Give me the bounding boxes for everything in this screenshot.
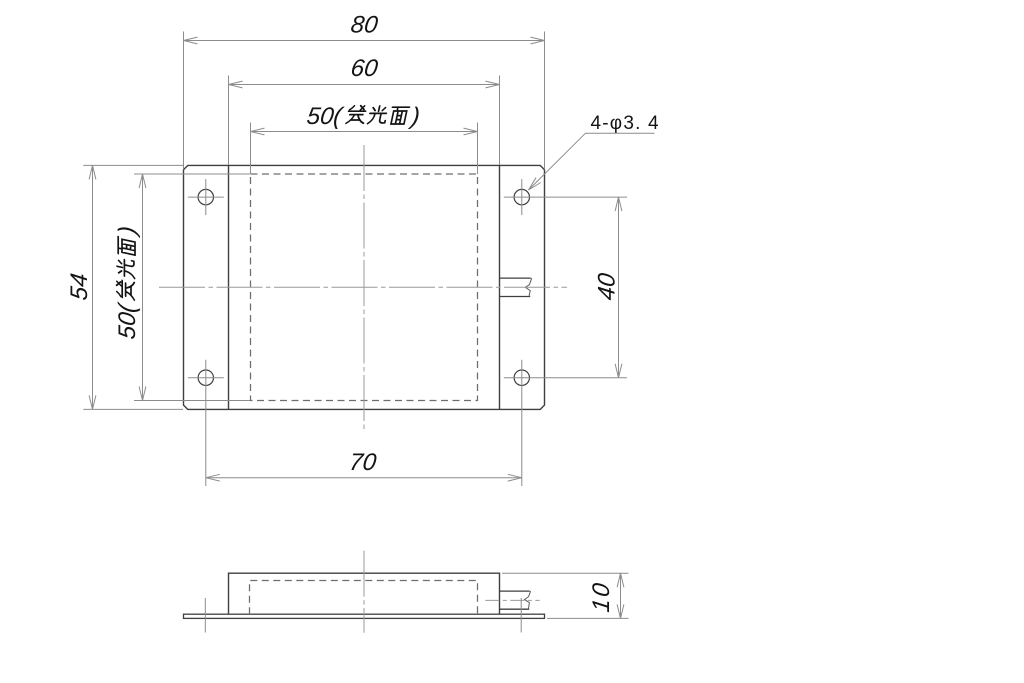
svg-text:70: 70 [348, 449, 379, 476]
svg-text:54: 54 [66, 272, 93, 302]
svg-text:60: 60 [349, 55, 380, 82]
svg-text:4-φ3. 4: 4-φ3. 4 [591, 113, 660, 134]
svg-text:80: 80 [349, 12, 380, 39]
svg-text:10: 10 [588, 580, 615, 614]
svg-text:40: 40 [594, 271, 621, 302]
